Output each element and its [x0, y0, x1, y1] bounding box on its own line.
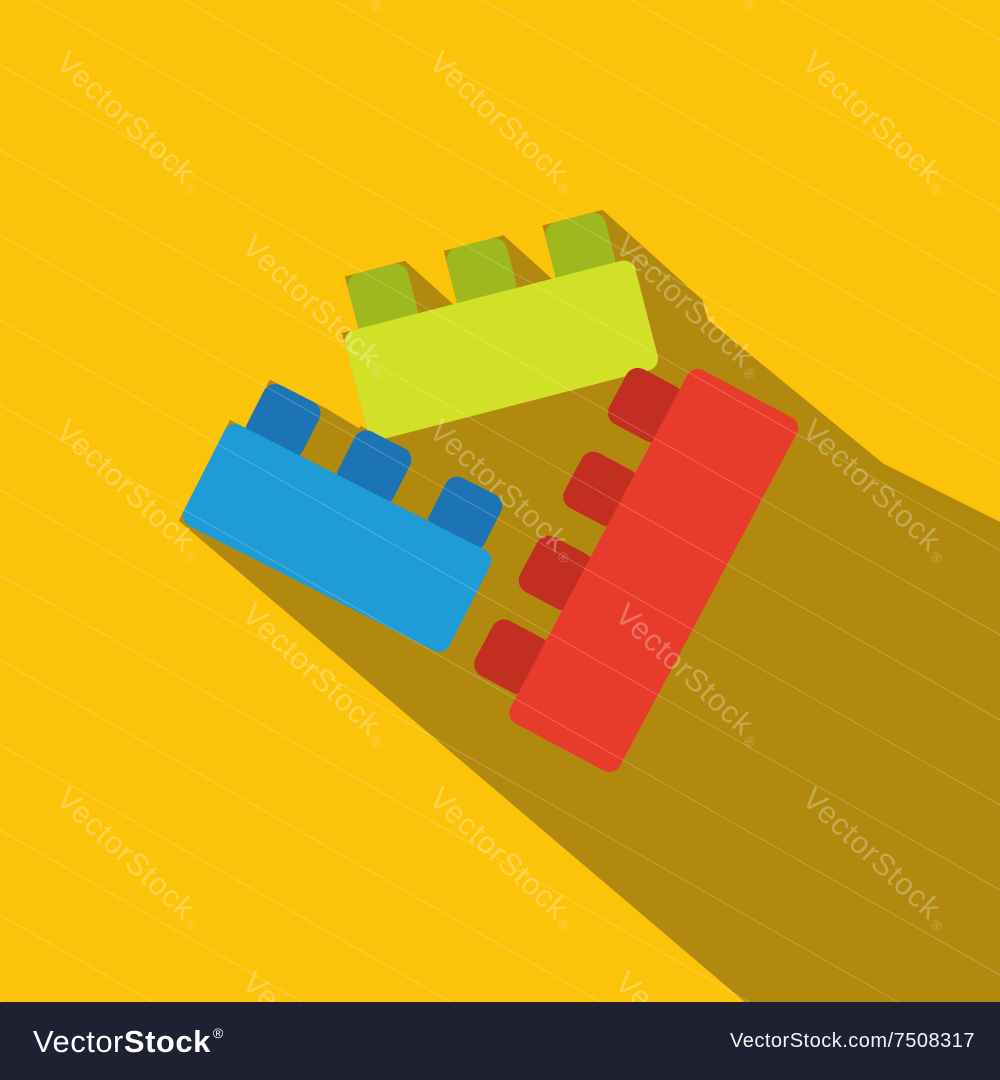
image-credit-url: VectorStock.com/7508317: [730, 1030, 975, 1053]
logo-vector: Vector: [33, 1024, 124, 1059]
logo-stock: Stock: [124, 1024, 211, 1059]
registered-mark: ®: [213, 1025, 224, 1041]
stock-artwork: VectorStock®VectorStock®VectorStock®Vect…: [0, 0, 1000, 1002]
vectorstock-logo: VectorStock®: [33, 1026, 224, 1057]
footer-bar: VectorStock® VectorStock.com/7508317: [0, 1002, 1000, 1080]
stock-image-page: VectorStock®VectorStock®VectorStock®Vect…: [0, 0, 1000, 1080]
